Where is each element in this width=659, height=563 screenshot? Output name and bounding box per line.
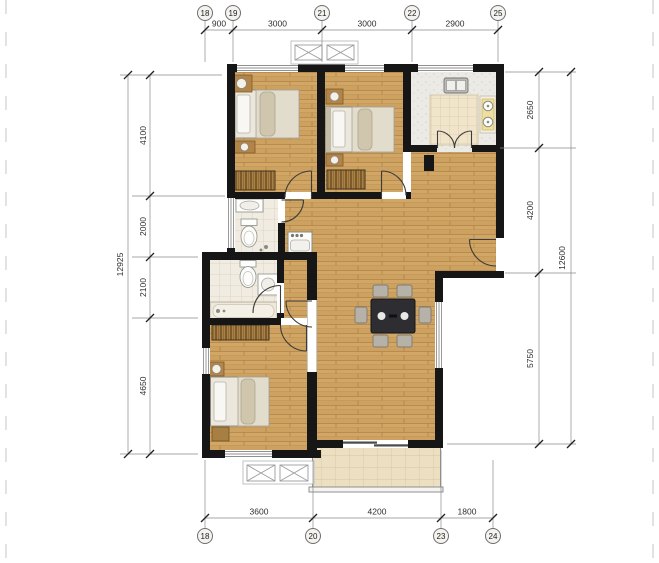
window (237, 64, 298, 72)
chair (373, 285, 388, 297)
dim-bottom-segment-2: 1800 (458, 507, 477, 517)
chair (419, 307, 431, 323)
window (345, 64, 384, 72)
column (424, 155, 434, 171)
floor-plan-drawing: 900 3000 3000 2900 18 19 21 22 25 3600 4… (0, 0, 659, 563)
window (418, 64, 473, 72)
entry-floor (435, 199, 496, 271)
grid-label: 22 (408, 9, 417, 18)
dim-bottom-segment-0: 3600 (250, 507, 269, 517)
dim-right-segment-1: 4200 (525, 201, 535, 220)
grid-label: 23 (437, 532, 446, 541)
dim-right-total: 12600 (557, 246, 567, 270)
window (225, 450, 272, 458)
kitchen-south-floor (411, 152, 496, 199)
ac-bay-bottom (243, 461, 314, 484)
chair (397, 335, 412, 347)
toilet (241, 219, 257, 247)
toilet (240, 261, 256, 288)
stove (480, 96, 496, 133)
dim-left-total: 12925 (115, 252, 125, 276)
dim-left-segment-1: 2000 (138, 217, 148, 236)
dresser (212, 427, 229, 441)
nightstand (234, 141, 255, 153)
floor-plan-page: 900 3000 3000 2900 18 19 21 22 25 3600 4… (0, 0, 659, 563)
window (435, 302, 443, 368)
chair (397, 285, 412, 297)
grid-label: 24 (489, 532, 498, 541)
dim-left-segment-3: 4650 (138, 376, 148, 395)
balcony-floor (312, 448, 441, 488)
kitchen-sink (444, 78, 468, 93)
grid-label: 20 (309, 532, 318, 541)
bathroom-sink (236, 199, 263, 212)
chair (355, 307, 367, 323)
wardrobe (231, 171, 275, 190)
nightstand (209, 362, 224, 376)
dim-top-segment-3: 2900 (446, 19, 465, 29)
bathtub (210, 302, 277, 320)
bed-3 (206, 377, 269, 426)
shower-fixture-icon (264, 245, 268, 249)
wardrobe (212, 325, 269, 340)
grid-label: 18 (201, 532, 210, 541)
grid-label: 21 (318, 9, 327, 18)
dim-top-segment-0: 900 (212, 19, 226, 29)
dim-bottom-segment-1: 4200 (368, 507, 387, 517)
dim-top-segment-2: 3000 (358, 19, 377, 29)
bathroom-sink (258, 274, 278, 295)
bed-2 (326, 107, 394, 152)
shower-fixture-icon (260, 249, 263, 252)
nightstand (326, 154, 343, 166)
bed-1 (231, 90, 299, 138)
dim-right-segment-2: 5750 (525, 349, 535, 368)
dim-right-segment-0: 2650 (525, 100, 535, 119)
dim-top-segment-1: 3000 (268, 19, 287, 29)
washing-machine (288, 232, 312, 253)
ac-bay-top (291, 41, 358, 64)
wardrobe (327, 170, 365, 189)
nightstand (326, 89, 343, 104)
dim-left-segment-0: 4100 (138, 126, 148, 145)
window (227, 198, 235, 248)
grid-label: 18 (201, 9, 210, 18)
window (202, 348, 210, 374)
dim-left-segment-2: 2100 (138, 278, 148, 297)
grid-label: 19 (229, 9, 238, 18)
grid-bubbles-bottom: 18 20 23 24 (198, 529, 501, 544)
chair (373, 335, 388, 347)
grid-label: 25 (494, 9, 503, 18)
